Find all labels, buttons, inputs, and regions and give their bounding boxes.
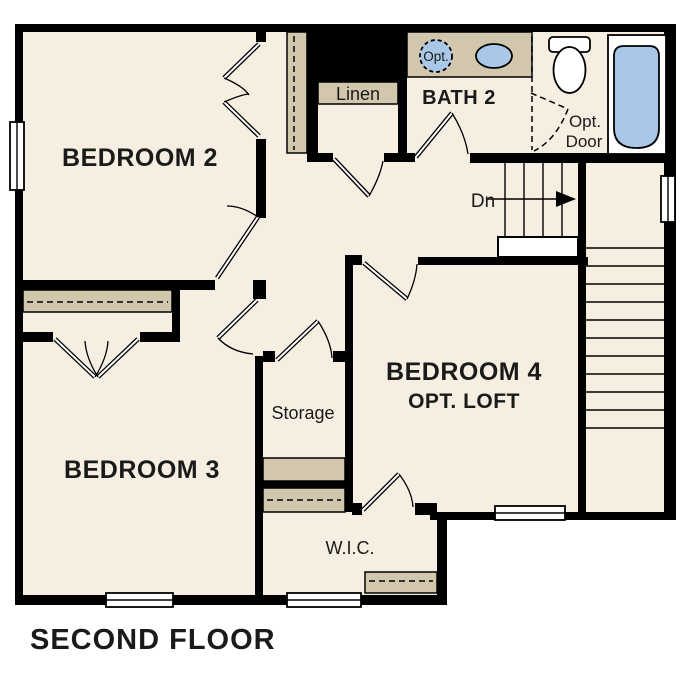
wic-shelf-upper xyxy=(263,488,345,512)
closet-shelf-bedroom3 xyxy=(23,290,172,312)
page-title: SECOND FLOOR xyxy=(30,624,276,656)
bedroom3-window xyxy=(106,593,173,607)
wall-mass xyxy=(307,24,407,82)
optional-sink-label: Opt. xyxy=(423,49,449,64)
storage-label: Storage xyxy=(271,403,334,423)
wic-window xyxy=(287,593,361,607)
storage-shelf xyxy=(263,458,345,481)
wic-label: W.I.C. xyxy=(326,538,375,558)
stairwell-window xyxy=(661,176,675,222)
closet-rod-bedroom2 xyxy=(287,32,307,153)
optional-door-label-line2: Door xyxy=(566,132,603,151)
stair-landing xyxy=(498,237,578,257)
bedroom2-label: BEDROOM 2 xyxy=(62,144,218,172)
bath2-label: BATH 2 xyxy=(422,87,496,109)
stairs-down-label: Dn xyxy=(471,191,495,212)
bedroom4-label: BEDROOM 4 xyxy=(386,358,542,386)
sink-icon xyxy=(476,44,512,68)
floor-plan: BEDROOM 2 BEDROOM 3 BEDROOM 4 OPT. LOFT … xyxy=(0,0,687,687)
wic-shelf-lower xyxy=(365,572,437,593)
linen-label: Linen xyxy=(336,84,380,104)
bedroom3-label: BEDROOM 3 xyxy=(64,456,220,484)
bedroom2-window xyxy=(10,122,24,190)
bedroom4-window xyxy=(495,506,565,520)
optional-door-label-line1: Opt. xyxy=(569,112,601,131)
bedroom4-sublabel: OPT. LOFT xyxy=(408,390,520,413)
bathtub-icon xyxy=(608,35,666,154)
